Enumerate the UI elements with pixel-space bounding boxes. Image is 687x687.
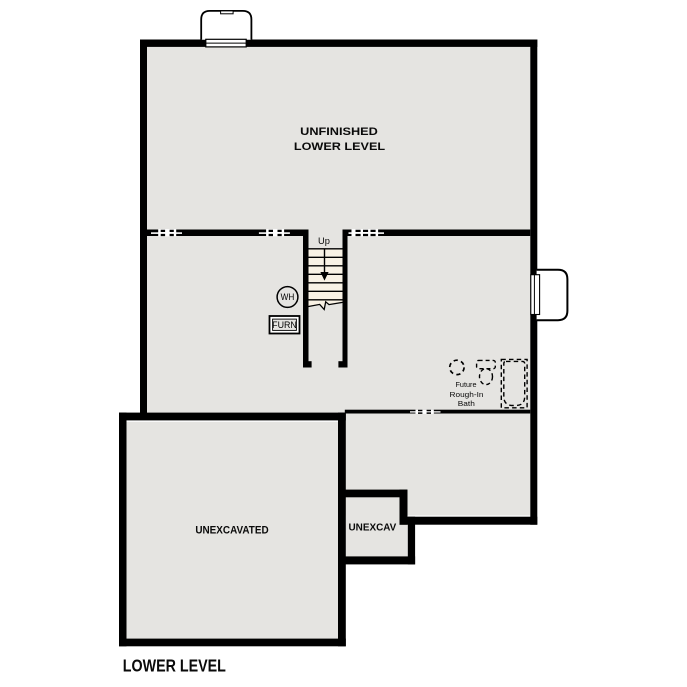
svg-text:Bath: Bath: [458, 399, 475, 408]
svg-text:LOWER LEVEL: LOWER LEVEL: [294, 141, 386, 153]
svg-text:FURN: FURN: [272, 320, 297, 330]
svg-text:Rough-In: Rough-In: [450, 390, 484, 399]
svg-text:Future: Future: [456, 380, 477, 389]
svg-text:UNEXCAV: UNEXCAV: [349, 523, 397, 534]
svg-text:WH: WH: [281, 292, 295, 302]
svg-text:LOWER LEVEL: LOWER LEVEL: [123, 656, 226, 676]
svg-text:UNEXCAVATED: UNEXCAVATED: [195, 525, 268, 537]
svg-text:UNFINISHED: UNFINISHED: [300, 126, 378, 138]
svg-text:Up: Up: [318, 236, 330, 246]
